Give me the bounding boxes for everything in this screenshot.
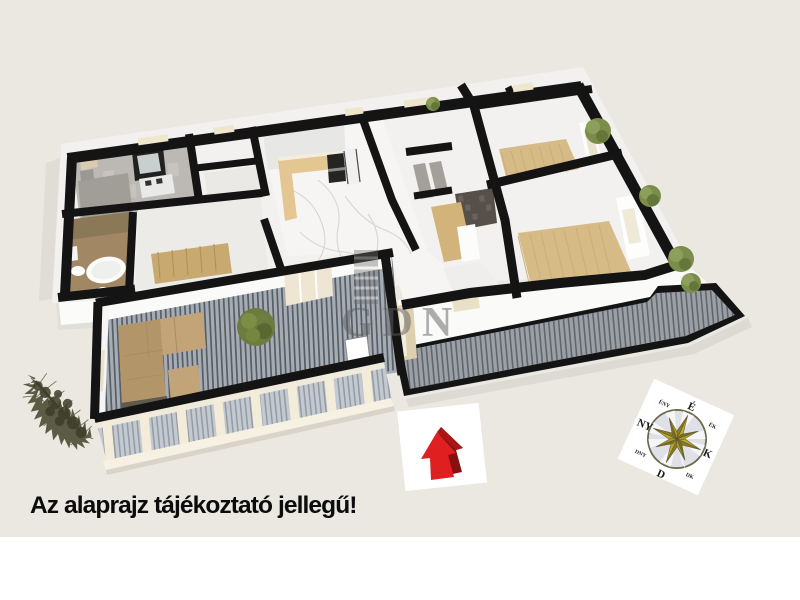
svg-text:GDN: GDN xyxy=(341,300,461,346)
svg-text:Az alaprajz tájékoztató jelleg: Az alaprajz tájékoztató jellegű! xyxy=(30,492,357,519)
